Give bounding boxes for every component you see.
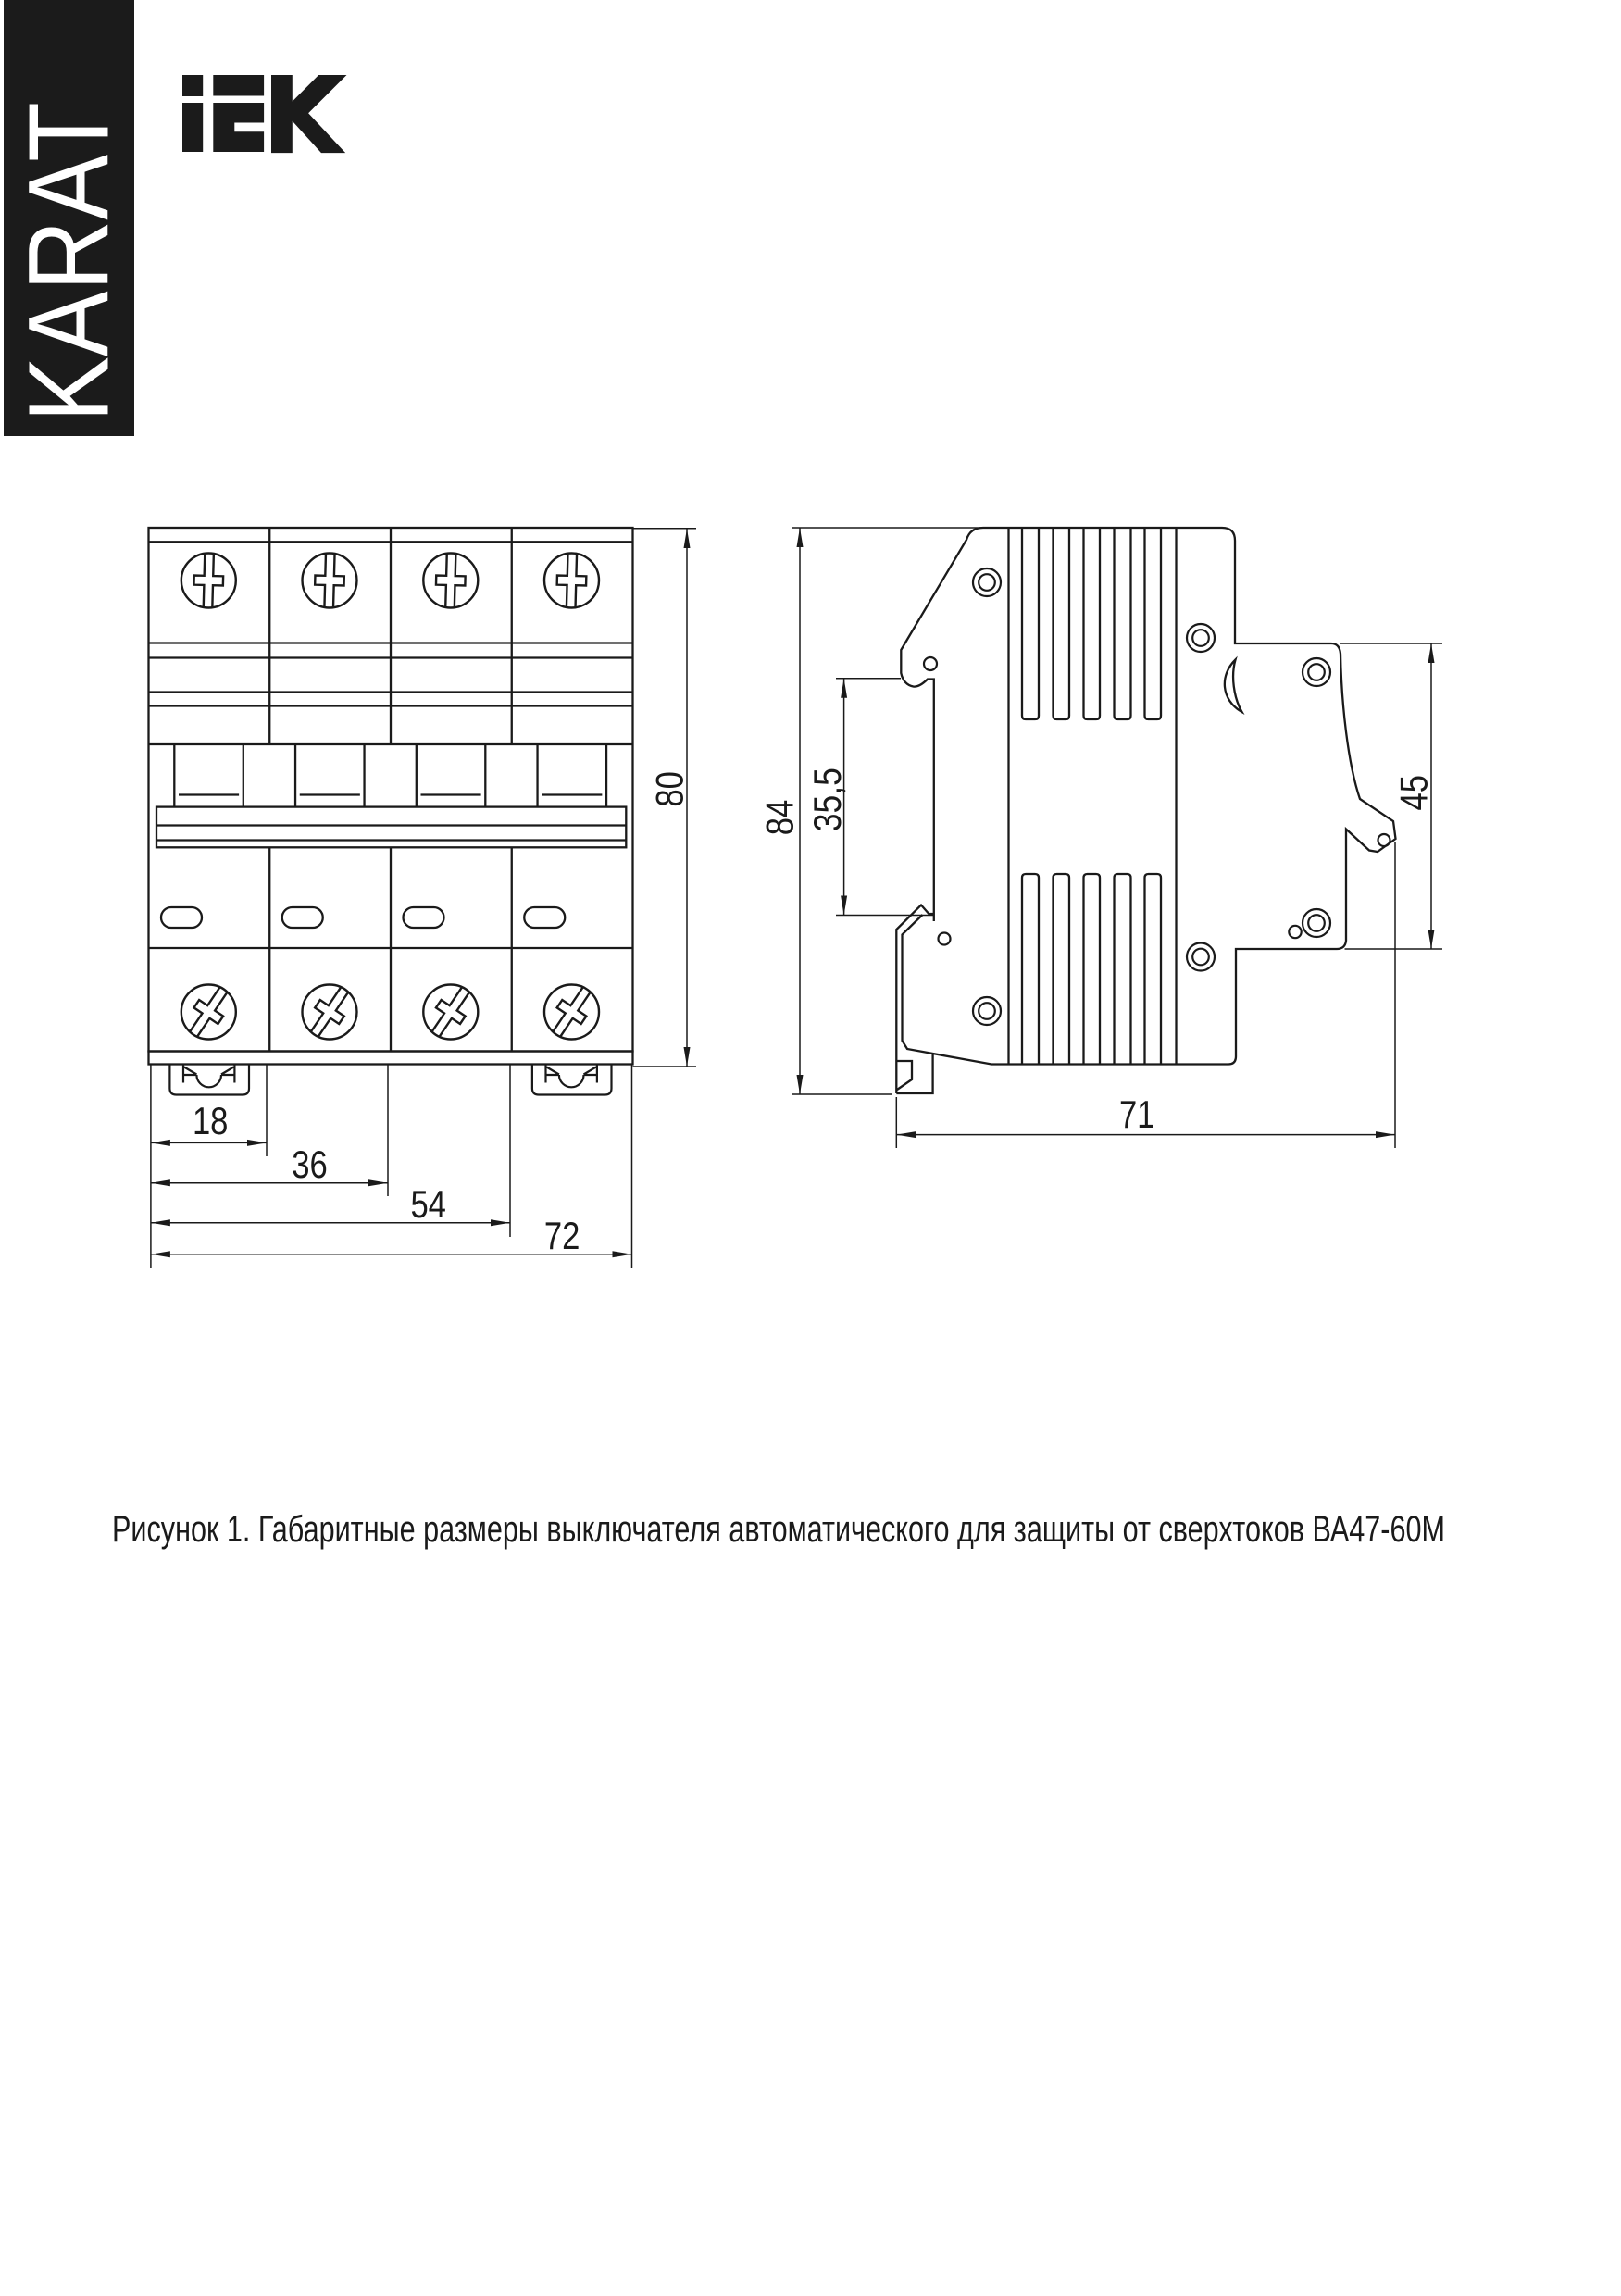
svg-text:80: 80 (648, 771, 692, 807)
svg-text:72: 72 (544, 1214, 580, 1257)
svg-text:KARAT: KARAT (6, 102, 133, 422)
svg-text:Рисунок 1. Габаритные размеры: Рисунок 1. Габаритные размеры выключател… (112, 1509, 1445, 1550)
svg-text:18: 18 (193, 1099, 229, 1142)
svg-text:45: 45 (1391, 775, 1435, 811)
svg-text:84: 84 (758, 800, 802, 836)
svg-text:36: 36 (292, 1142, 328, 1186)
svg-text:35,5: 35,5 (805, 767, 849, 831)
svg-text:54: 54 (410, 1182, 446, 1226)
svg-text:71: 71 (1119, 1092, 1155, 1136)
